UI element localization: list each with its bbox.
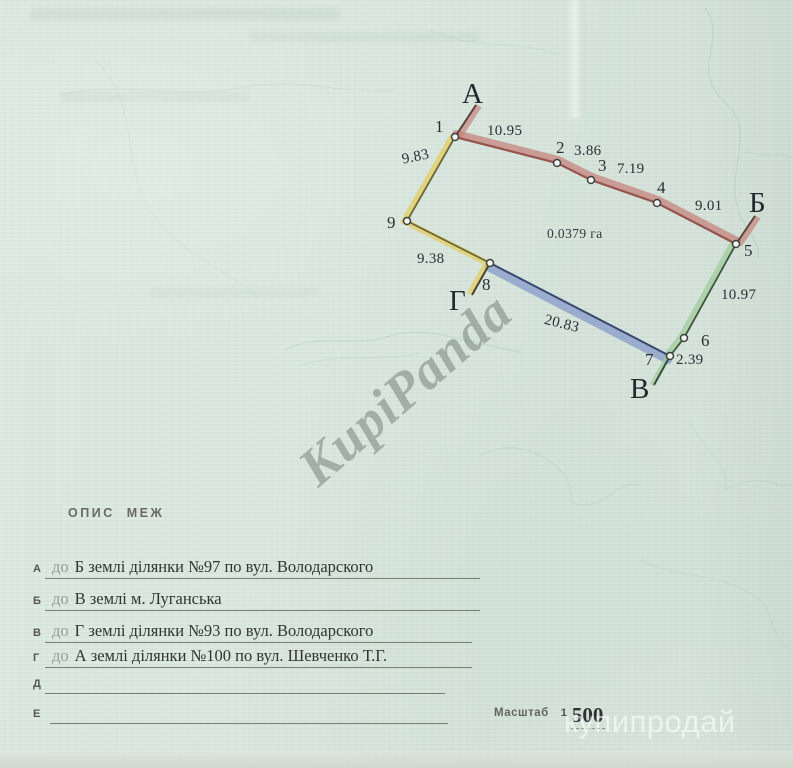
- legend-heading: ОПИС МЕЖ: [68, 506, 164, 520]
- handwritten-prefix: до: [52, 557, 69, 576]
- segment-length: 3.86: [574, 144, 601, 159]
- boundary-row-text: [52, 702, 58, 722]
- vertex-number: 7: [645, 351, 654, 368]
- boundary-row-text: доВ землі м. Луганська: [52, 589, 222, 609]
- vertex-number: 8: [482, 276, 491, 293]
- handwritten-prefix: до: [52, 621, 69, 640]
- handwritten-prefix: до: [52, 589, 69, 608]
- segment-length: 10.95: [487, 124, 522, 139]
- vertex-number: 9: [387, 214, 396, 231]
- boundary-row-label: Д: [33, 678, 41, 690]
- site-watermark: купипродай: [564, 704, 736, 740]
- segment-length: 10.97: [721, 288, 756, 303]
- boundary-row-text: доГ землі ділянки №93 по вул. Володарско…: [52, 621, 373, 641]
- boundary-row-label: Е: [33, 708, 40, 720]
- scale-label: Масштаб: [494, 707, 549, 719]
- corner-label-g: Г: [449, 287, 466, 316]
- segment-length: 7.19: [617, 162, 644, 177]
- corner-label-v: В: [630, 375, 649, 404]
- vertex-number: 6: [701, 332, 710, 349]
- south-boundary-band: [488, 267, 668, 360]
- handwritten-prefix: до: [52, 646, 69, 665]
- boundary-description: А землі ділянки №100 по вул. Шевченко Т.…: [75, 646, 387, 665]
- boundary-row-label: Б: [33, 595, 41, 607]
- vertex-number: 5: [744, 242, 753, 259]
- boundary-row-underline: [45, 671, 445, 694]
- boundary-row-label: А: [33, 563, 41, 575]
- boundary-row-text: доБ землі ділянки №97 по вул. Володарско…: [52, 557, 373, 577]
- vertex-number: 3: [598, 157, 607, 174]
- boundary-row-text: доА землі ділянки №100 по вул. Шевченко …: [52, 646, 387, 666]
- boundary-description: Г землі ділянки №93 по вул. Володарского: [75, 621, 374, 640]
- boundary-row-label: В: [33, 627, 41, 639]
- vertex-number: 2: [556, 139, 565, 156]
- bottom-scan-edge: [0, 751, 793, 768]
- parcel-area-label: 0.0379 га: [547, 226, 603, 242]
- vertex-number: 4: [657, 179, 666, 196]
- boundary-description: Б землі ділянки №97 по вул. Володарского: [75, 557, 374, 576]
- segment-length: 9.01: [695, 199, 722, 214]
- scanned-survey-document: А Б В Г 1 2 3 4 5 6 7 8 9 10.95 3.86 7.1…: [0, 0, 793, 768]
- corner-label-b: Б: [749, 189, 766, 218]
- boundary-row-text: [52, 672, 58, 692]
- segment-length: 9.38: [417, 252, 444, 267]
- south-boundary-line: [490, 263, 670, 356]
- boundary-row-label: Г: [33, 652, 39, 664]
- boundary-row-underline: [50, 701, 448, 724]
- corner-label-a: А: [462, 80, 483, 109]
- segment-length: 2.39: [676, 353, 703, 368]
- vertex-number: 1: [435, 118, 444, 135]
- boundary-description: В землі м. Луганська: [75, 589, 222, 608]
